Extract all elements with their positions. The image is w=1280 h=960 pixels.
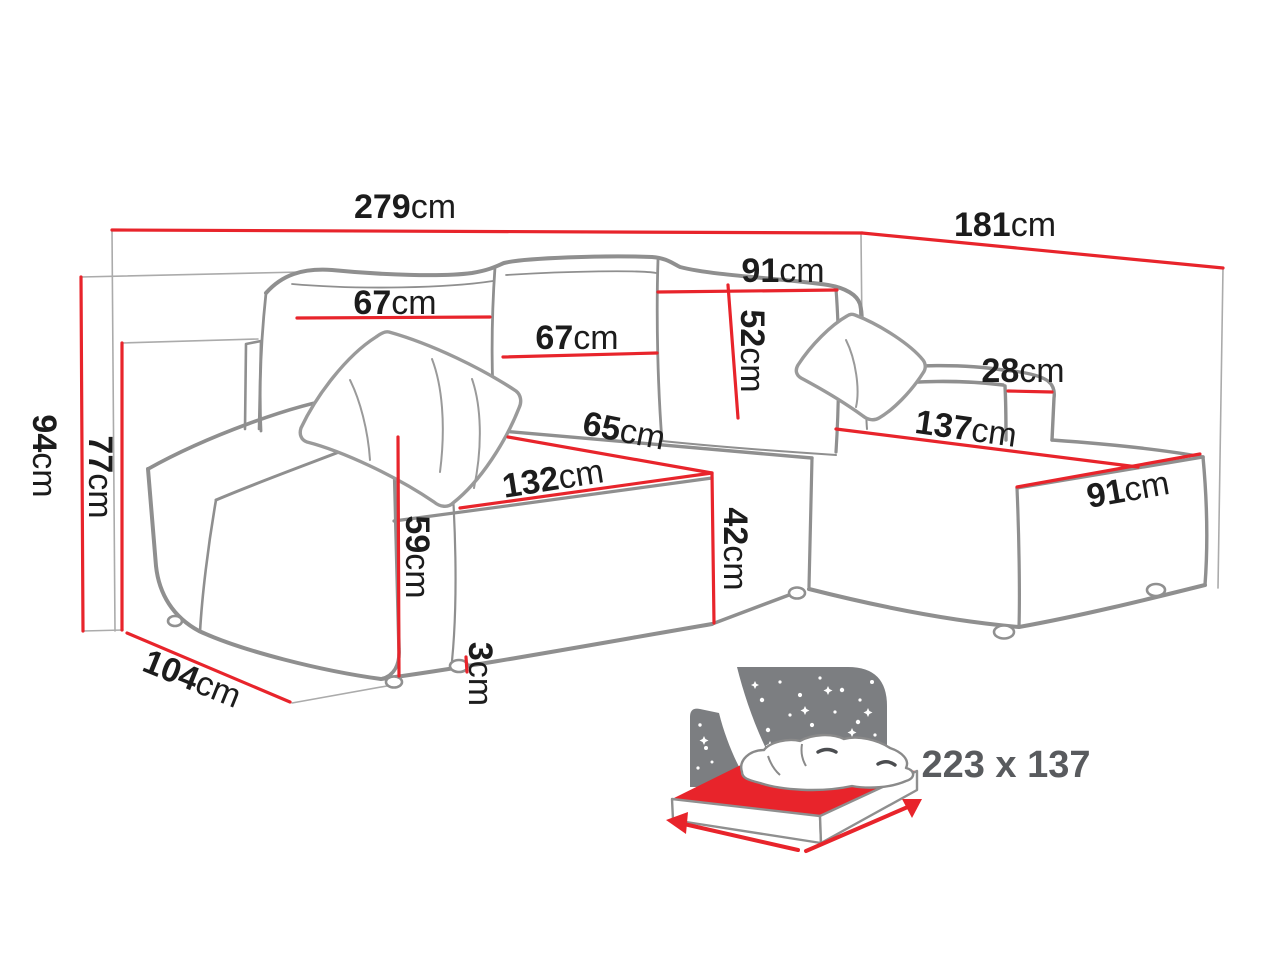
guide-height-top bbox=[81, 272, 302, 277]
leg-icon bbox=[168, 616, 182, 626]
chaise-right-corner-edge bbox=[1203, 457, 1207, 585]
dim-line-back-cushion-corner bbox=[658, 290, 837, 292]
label-side-depth: 104cm bbox=[138, 642, 247, 715]
sofa-outline bbox=[148, 256, 1207, 687]
guide-backrest-top bbox=[122, 339, 258, 343]
guide-right-edge bbox=[1218, 268, 1223, 588]
guide-bottom-left bbox=[83, 630, 123, 631]
leg-icon bbox=[994, 626, 1014, 639]
diagram-page: 279cm 181cm 94cm 77cm 104cm 67cm 67cm 91… bbox=[0, 0, 1280, 960]
leg-icon bbox=[1147, 584, 1165, 596]
label-total-depth: 181cm bbox=[954, 206, 1056, 244]
leg-icon bbox=[789, 588, 805, 599]
back-cushion-seam-2 bbox=[657, 260, 662, 441]
label-back-cushion-left: 67cm bbox=[353, 284, 436, 322]
chaise-front-left-edge bbox=[1017, 488, 1019, 627]
dim-line-armrest-width bbox=[1008, 391, 1052, 392]
leg-icon bbox=[386, 677, 402, 688]
chaise-bottom-left-edge bbox=[809, 589, 1019, 627]
label-total-width: 279cm bbox=[354, 188, 456, 226]
label-back-cushion-height: 52cm bbox=[733, 309, 771, 392]
seat-corner-edge bbox=[809, 458, 812, 587]
right-pillow bbox=[796, 314, 925, 419]
label-armrest-width: 28cm bbox=[981, 352, 1064, 390]
sleeping-function-icon: 223 x 137 bbox=[666, 667, 1091, 851]
back-corner-post bbox=[245, 341, 261, 429]
guide-back-left-edge bbox=[112, 230, 115, 631]
armrest-front-left-edge bbox=[200, 500, 216, 632]
seat-bottom-corner-edge bbox=[712, 592, 797, 624]
left-pillow bbox=[300, 332, 520, 506]
armrest-bottom-edge bbox=[148, 469, 381, 679]
dim-line-total-width bbox=[112, 230, 862, 233]
label-leg-height: 3cm bbox=[461, 642, 499, 706]
dimension-lines bbox=[81, 230, 1223, 702]
guide-side-bottom bbox=[292, 684, 398, 703]
seat-bottom-edge bbox=[381, 624, 712, 679]
chaise-bottom-right-edge bbox=[1019, 585, 1205, 627]
label-back-cushion-middle: 67cm bbox=[535, 319, 618, 357]
label-armrest-height: 59cm bbox=[398, 515, 436, 598]
label-seat-width: 132cm bbox=[500, 452, 607, 505]
label-chaise-length: 137cm bbox=[913, 403, 1019, 455]
dim-line-seat-height bbox=[712, 473, 714, 623]
sofa-legs bbox=[168, 584, 1165, 688]
sofa-dimension-diagram: 279cm 181cm 94cm 77cm 104cm 67cm 67cm 91… bbox=[0, 0, 1280, 960]
label-seat-depth: 65cm bbox=[580, 404, 669, 457]
sleeping-area-label: 223 x 137 bbox=[921, 744, 1090, 786]
label-back-cushion-corner: 91cm bbox=[741, 252, 824, 290]
label-backrest-height: 77cm bbox=[81, 435, 119, 518]
bounding-guides bbox=[81, 230, 1223, 703]
chaise-back-right-edge bbox=[1052, 440, 1203, 457]
label-total-height: 94cm bbox=[25, 414, 63, 497]
label-seat-height: 42cm bbox=[716, 507, 754, 590]
